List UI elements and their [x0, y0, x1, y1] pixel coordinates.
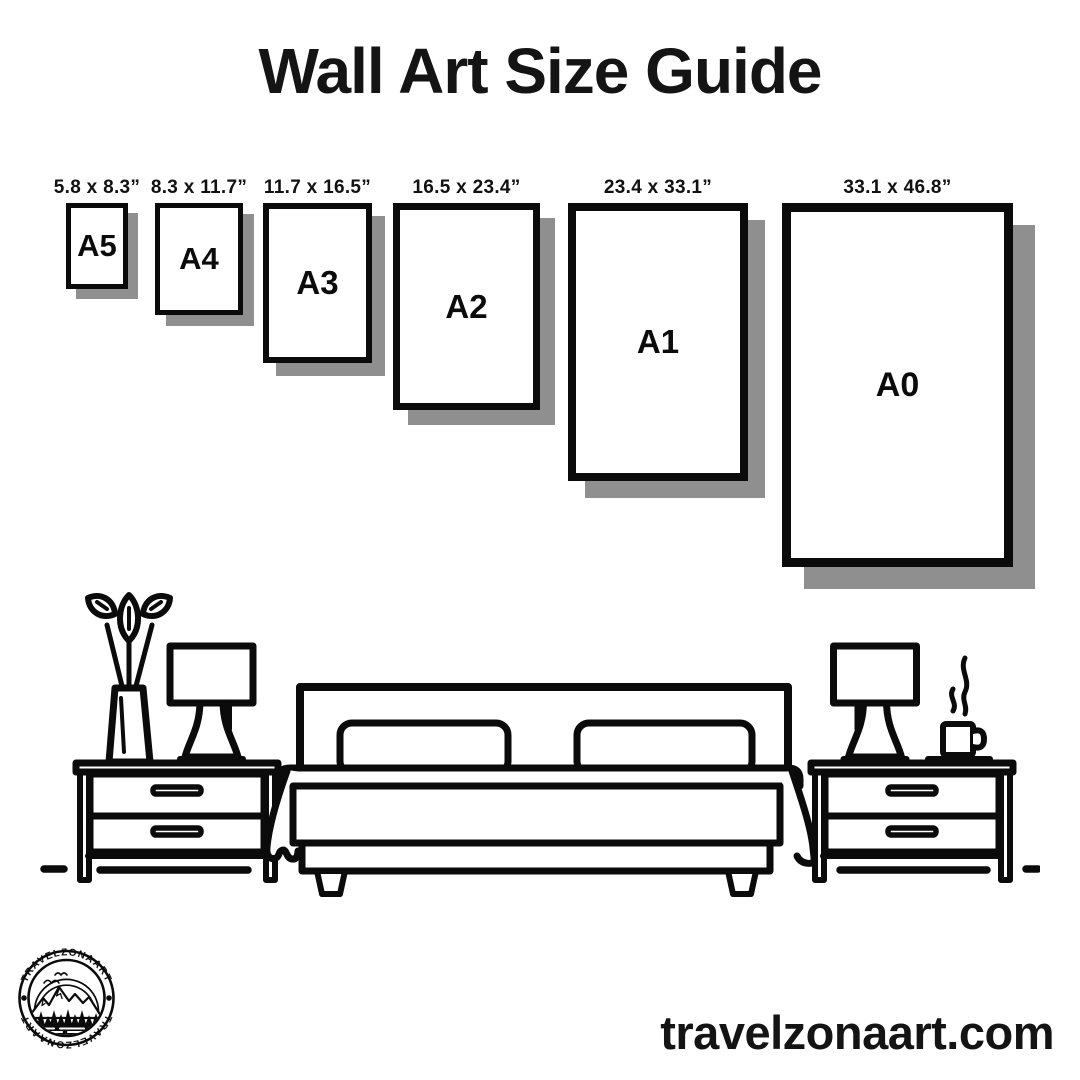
right-nightstand-icon [811, 763, 1013, 880]
left-nightstand-icon [76, 763, 278, 880]
logo-right-dot [106, 995, 112, 1001]
frame-a3: 11.7 x 16.5” A3 [263, 177, 372, 363]
frame-a2: 16.5 x 23.4” A2 [393, 177, 540, 410]
frame-a2-paper: A2 [393, 203, 540, 410]
frame-a3-size-label: 11.7 x 16.5” [264, 177, 371, 199]
bed-icon [267, 687, 814, 894]
logo-left-dot [21, 995, 27, 1001]
left-table-lamp-icon [170, 646, 253, 759]
frame-a4-name: A4 [179, 241, 219, 277]
frame-a5: 5.8 x 8.3” A5 [66, 177, 128, 289]
frame-a0-paper: A0 [782, 203, 1013, 567]
frame-a3-paper: A3 [263, 203, 372, 363]
bedroom-scene-illustration [40, 590, 1040, 900]
frame-a1-paper: A1 [568, 203, 748, 481]
brand-logo-badge: TRAVELZONAART TRAVELZONAART [2, 932, 132, 1062]
frame-a4-paper: A4 [155, 203, 243, 315]
frame-a4-size-label: 8.3 x 11.7” [151, 177, 247, 199]
frame-a1-size-label: 23.4 x 33.1” [604, 177, 712, 199]
frame-a0-name: A0 [876, 366, 919, 405]
frame-a5-name: A5 [77, 228, 117, 264]
frame-a1: 23.4 x 33.1” A1 [568, 177, 748, 481]
frame-a3-name: A3 [296, 264, 338, 302]
frame-a0-size-label: 33.1 x 46.8” [843, 177, 951, 199]
size-guide-poster: Wall Art Size Guide 5.8 x 8.3” A5 8.3 x … [0, 0, 1080, 1080]
frame-a5-paper: A5 [66, 203, 128, 289]
right-table-lamp-icon [834, 646, 917, 759]
frame-a2-name: A2 [445, 288, 487, 326]
website-url: travelzonaart.com [660, 1005, 1054, 1060]
coffee-cup-icon [928, 658, 990, 759]
plant-vase-icon [88, 595, 170, 762]
frame-a5-size-label: 5.8 x 8.3” [54, 177, 140, 199]
frame-a2-size-label: 16.5 x 23.4” [412, 177, 520, 199]
page-title: Wall Art Size Guide [0, 34, 1080, 108]
frame-a1-name: A1 [637, 323, 679, 361]
frame-a4: 8.3 x 11.7” A4 [155, 177, 243, 315]
frame-a0: 33.1 x 46.8” A0 [782, 177, 1013, 567]
